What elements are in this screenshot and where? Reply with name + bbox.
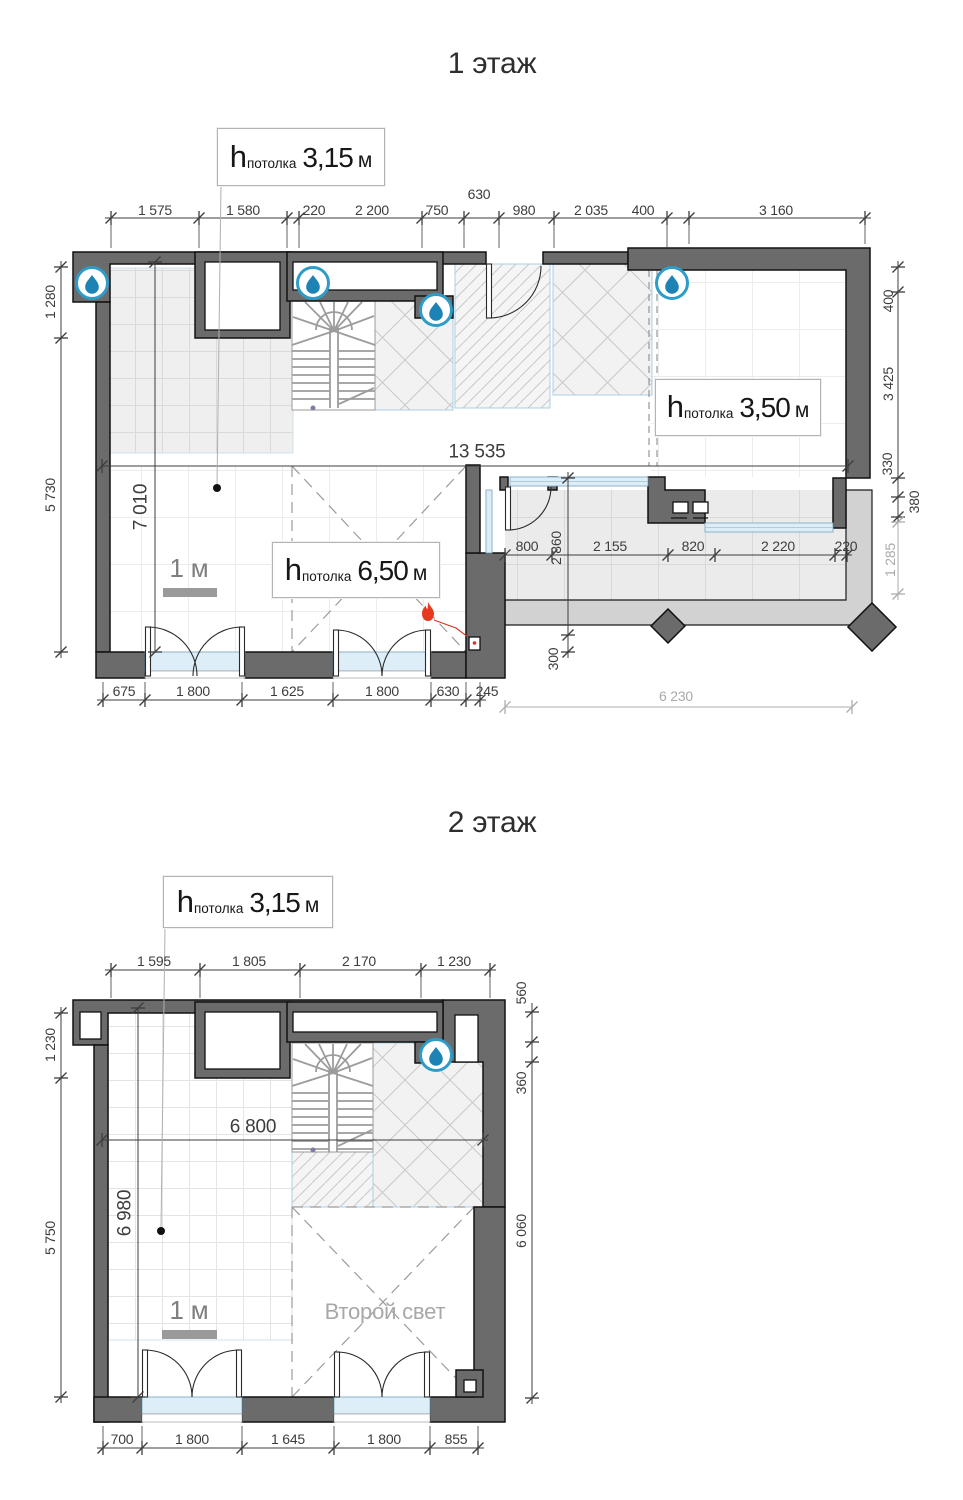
dim-label: 630 bbox=[437, 684, 460, 698]
window-opening bbox=[80, 1012, 101, 1039]
water-drop-icon bbox=[298, 268, 329, 299]
dim-label: 1 230 bbox=[43, 1028, 57, 1062]
dim-label: 1 800 bbox=[175, 1432, 209, 1446]
void-label: Второй свет bbox=[325, 1301, 446, 1323]
dim-label: 380 bbox=[907, 491, 921, 514]
door-leaf bbox=[506, 487, 511, 530]
dim-label: 1 580 bbox=[226, 203, 260, 217]
dim-label: 400 bbox=[632, 203, 655, 217]
dim-label: 630 bbox=[468, 187, 491, 201]
ceiling-height-label: hпотолка6,50м bbox=[272, 542, 440, 598]
scale-label: 1 м bbox=[170, 555, 209, 581]
hatch-zone bbox=[553, 264, 652, 395]
door-leaf bbox=[334, 630, 339, 676]
door-swing bbox=[337, 1352, 382, 1397]
dim-label: 360 bbox=[514, 1072, 528, 1095]
dim-label: 7 010 bbox=[132, 484, 151, 531]
dim-label: 820 bbox=[682, 539, 705, 553]
staircase bbox=[292, 1043, 373, 1153]
dim-label: 1 285 bbox=[883, 543, 897, 577]
water-drop-icon bbox=[421, 295, 452, 326]
leader-dot bbox=[157, 1227, 165, 1235]
floorplan-sheet: 1 этаж 2 этаж hпотолка3,15м hпотолка3,50… bbox=[0, 0, 963, 1500]
dim-label: 3 425 bbox=[881, 367, 895, 401]
ceiling-height-label: hпотолка3,15м bbox=[163, 876, 333, 928]
dim-label: 6 230 bbox=[659, 689, 693, 703]
floorplan-drawing bbox=[0, 0, 963, 1500]
dim-label: 2 220 bbox=[761, 539, 795, 553]
door-leaf bbox=[426, 630, 431, 676]
room-floor-grid bbox=[651, 270, 846, 477]
door-swing bbox=[192, 1350, 239, 1397]
dim-label: 3 160 bbox=[759, 203, 793, 217]
dim-label: 855 bbox=[445, 1432, 468, 1446]
water-drop-icon bbox=[421, 1040, 452, 1071]
dim-label: 1 800 bbox=[365, 684, 399, 698]
dim-label: 220 bbox=[835, 539, 858, 553]
dim-label: 560 bbox=[514, 982, 528, 1005]
kitchen-unit bbox=[648, 477, 705, 523]
leader-dot bbox=[213, 484, 221, 492]
dim-label: 2 170 bbox=[342, 954, 376, 968]
dim-label: 2 200 bbox=[355, 203, 389, 217]
dim-label: 2 035 bbox=[574, 203, 608, 217]
scale-label: 1 м bbox=[170, 1297, 209, 1323]
dim-label: 1 800 bbox=[176, 684, 210, 698]
scale-bar bbox=[163, 588, 217, 597]
dim-label: 5 750 bbox=[43, 1221, 57, 1255]
door-leaf bbox=[487, 264, 492, 318]
door-leaf bbox=[425, 1352, 430, 1397]
dim-label: 750 bbox=[426, 203, 449, 217]
dim-label: 220 bbox=[303, 203, 326, 217]
ceiling-height-label: hпотолка3,15м bbox=[217, 128, 385, 186]
dim-label: 1 280 bbox=[43, 285, 57, 319]
door-leaf bbox=[143, 1350, 148, 1397]
door-leaf bbox=[240, 627, 245, 676]
dim-label: 245 bbox=[476, 684, 499, 698]
shaft-opening bbox=[205, 262, 280, 330]
dim-label: 1 595 bbox=[137, 954, 171, 968]
dim-label: 700 bbox=[111, 1432, 134, 1446]
shaft-opening bbox=[205, 1012, 280, 1069]
doors bbox=[143, 1350, 430, 1397]
door-leaf bbox=[335, 1352, 340, 1397]
dim-label: 980 bbox=[513, 203, 536, 217]
dim-label: 2 155 bbox=[593, 539, 627, 553]
ceiling-height-label: hпотолка3,50м bbox=[655, 379, 821, 436]
meter-box bbox=[464, 1380, 476, 1392]
niche-opening bbox=[293, 1012, 437, 1032]
dim-label: 5 730 bbox=[43, 478, 57, 512]
hatch-zone bbox=[292, 1152, 373, 1207]
dim-label: 13 535 bbox=[449, 443, 506, 462]
floor1-title: 1 этаж bbox=[448, 49, 537, 79]
dim-label: 800 bbox=[516, 539, 539, 553]
dim-label: 1 625 bbox=[270, 684, 304, 698]
dim-label: 1 805 bbox=[232, 954, 266, 968]
dim-label: 330 bbox=[880, 453, 894, 476]
door-swing bbox=[145, 1350, 192, 1397]
dim-label: 6 800 bbox=[230, 1118, 277, 1137]
water-drop-icon bbox=[77, 268, 108, 299]
dim-label: 6 980 bbox=[116, 1190, 135, 1237]
dim-label: 6 060 bbox=[514, 1214, 528, 1248]
dim-label: 400 bbox=[881, 290, 895, 313]
dim-label: 1 800 bbox=[367, 1432, 401, 1446]
staircase bbox=[292, 301, 375, 411]
water-drop-icon bbox=[657, 268, 688, 299]
door-leaf bbox=[237, 1350, 242, 1397]
slot-opening bbox=[455, 1015, 478, 1062]
dim-label: 675 bbox=[113, 684, 136, 698]
dim-label: 1 230 bbox=[437, 954, 471, 968]
dim-label: 1 575 bbox=[138, 203, 172, 217]
floor2-title: 2 этаж bbox=[448, 808, 537, 838]
door-swing bbox=[382, 1352, 427, 1397]
dim-label: 1 645 bbox=[271, 1432, 305, 1446]
hatch-zone bbox=[455, 264, 550, 408]
scale-bar bbox=[162, 1330, 217, 1339]
dim-label: 2 860 bbox=[549, 531, 563, 565]
dim-label: 300 bbox=[546, 648, 560, 671]
